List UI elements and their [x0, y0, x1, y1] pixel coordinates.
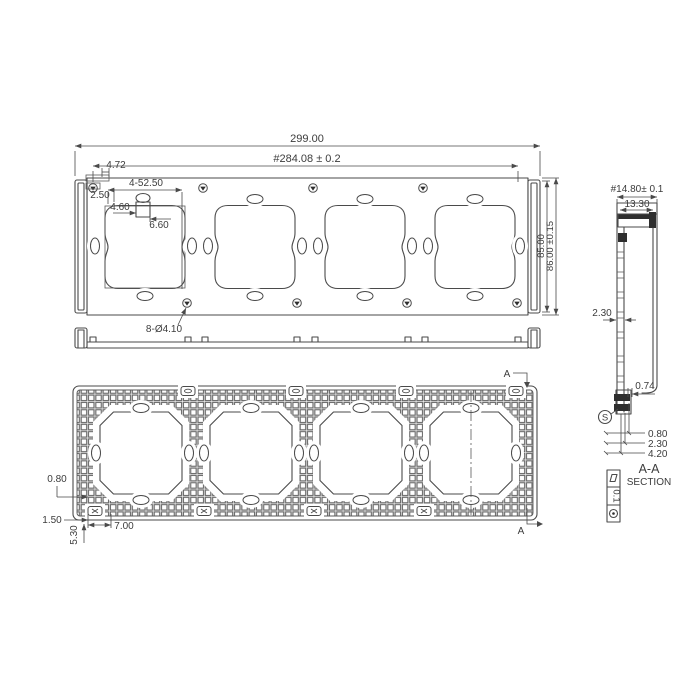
- surface-finish-symbol: S: [599, 409, 619, 424]
- front-opening: [105, 206, 185, 289]
- edge-tabs: [90, 337, 521, 342]
- dim-corner-width: 7.00: [114, 521, 134, 532]
- dim-boss-width: 6.60: [149, 220, 169, 231]
- edge-bar: [87, 342, 528, 348]
- front-opening: [325, 206, 405, 289]
- flatness-value: 0.1: [611, 489, 622, 502]
- dim-slot-width: 4.60: [110, 202, 130, 213]
- dim-corner-height: 5.30: [69, 525, 80, 545]
- wall-plate-drawing: 299.00 #284.08 ± 0.2 85.00 86.00 ±0.15 4…: [0, 0, 700, 700]
- edge-view: [75, 328, 540, 348]
- section-subtitle: SECTION: [627, 477, 671, 488]
- front-opening: [215, 206, 295, 289]
- dim-clip-offset: 2.50: [90, 190, 110, 201]
- dim-rib: 0.80: [47, 474, 67, 485]
- dim-lip: 0.74: [635, 381, 655, 392]
- flatness-icon: [610, 475, 617, 482]
- front-left-rail: [75, 180, 87, 313]
- surface-symbol-letter: S: [602, 413, 608, 424]
- dim-mount-span: #284.08 ± 0.2: [273, 153, 340, 165]
- section-marker-bottom: A: [518, 526, 525, 537]
- dim-inner-depth: 13.30: [624, 199, 649, 210]
- edge-right-cap: [528, 328, 540, 348]
- section-title: A-A: [639, 462, 661, 476]
- flatness-tolerance-frame: 0.1: [607, 470, 622, 522]
- back-view: A A 0.80 1.50 5.30 7.00: [42, 369, 543, 545]
- dim-clip-width: 4.72: [106, 160, 126, 171]
- section-view: #14.80± 0.1 13.30 2.30 0.74 0.80 2.30 4.…: [592, 184, 671, 522]
- front-view: 299.00 #284.08 ± 0.2 85.00 86.00 ±0.15 4…: [75, 133, 559, 335]
- dim-height-tol: 86.00 ±0.15: [545, 221, 556, 271]
- dim-total-width: 299.00: [290, 133, 324, 145]
- dim-step-3: 4.20: [648, 449, 668, 460]
- dim-mount-holes: 8-Ø4.10: [146, 324, 183, 335]
- dim-openings: 4-52.50: [129, 178, 163, 189]
- section-marker-top: A: [504, 369, 511, 380]
- front-opening: [435, 206, 515, 289]
- dim-wall: 2.30: [592, 308, 612, 319]
- dim-depth: #14.80± 0.1: [611, 184, 664, 195]
- engineering-drawing-page: 299.00 #284.08 ± 0.2 85.00 86.00 ±0.15 4…: [0, 0, 700, 700]
- dim-edge: 1.50: [42, 515, 62, 526]
- edge-left-cap: [75, 328, 87, 348]
